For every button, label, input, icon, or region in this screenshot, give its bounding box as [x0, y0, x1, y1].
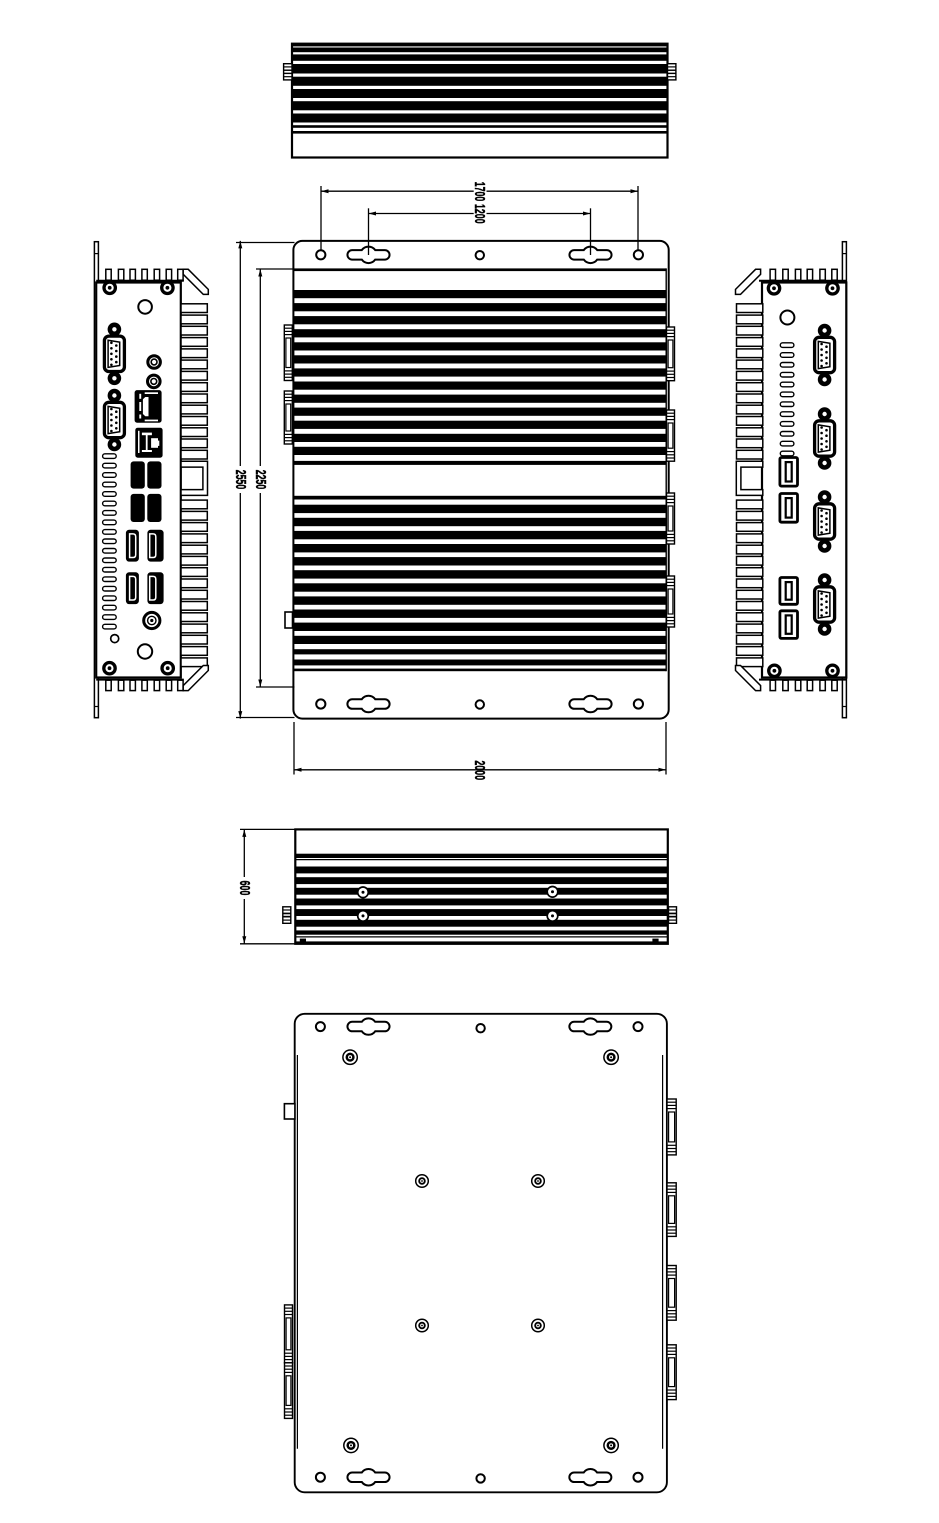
- svg-text:600: 600: [236, 881, 253, 896]
- svg-text:2550: 2550: [232, 470, 249, 490]
- svg-text:1700: 1700: [472, 182, 489, 202]
- svg-text:2250: 2250: [252, 470, 269, 490]
- svg-text:1200: 1200: [472, 204, 489, 224]
- svg-text:2000: 2000: [472, 761, 489, 781]
